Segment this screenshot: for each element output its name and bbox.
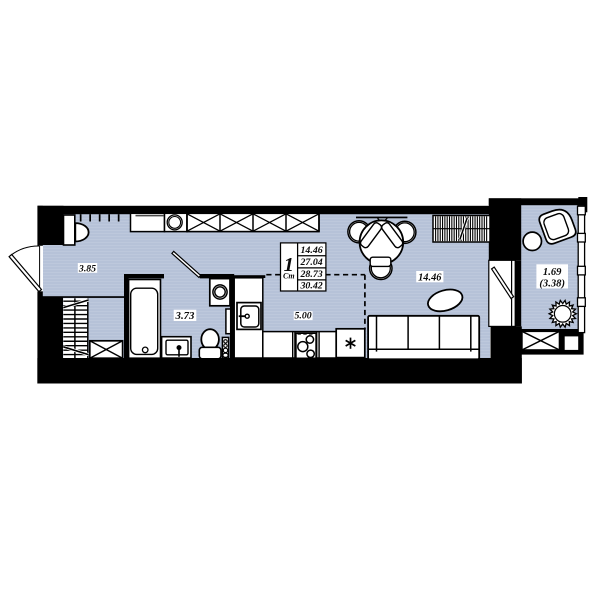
- svg-text:Ст: Ст: [283, 272, 295, 281]
- svg-text:5.00: 5.00: [295, 311, 312, 322]
- svg-text:14.46: 14.46: [418, 273, 442, 284]
- svg-text:3.85: 3.85: [78, 263, 96, 274]
- svg-text:1.69: 1.69: [543, 267, 562, 278]
- svg-text:3.73: 3.73: [175, 310, 195, 322]
- svg-text:28.73: 28.73: [299, 269, 322, 280]
- svg-text:14.46: 14.46: [300, 245, 322, 256]
- svg-text:30.42: 30.42: [299, 281, 322, 292]
- svg-text:27.04: 27.04: [299, 257, 322, 268]
- svg-text:(3.38): (3.38): [539, 278, 565, 289]
